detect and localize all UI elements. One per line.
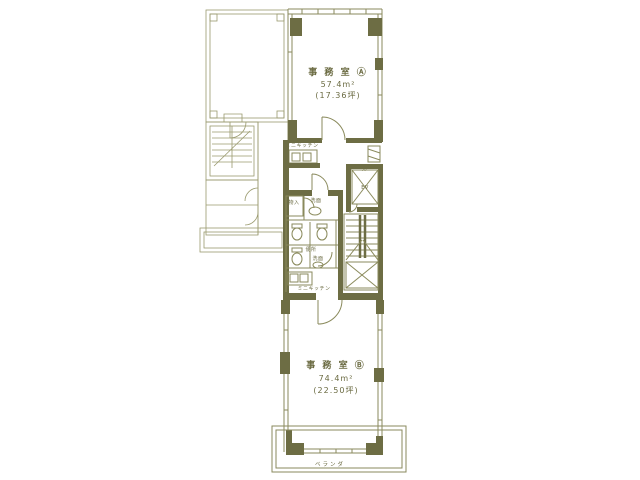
kitchen-sink [292,153,300,161]
corner-notch [210,14,217,21]
sanitary-block: 物入 洗面 便所 洗面 ミニキッチン [286,196,338,292]
stair-right-wall [378,212,383,300]
adjacent-balcony-inner [204,232,282,248]
storage-label: 物入 [288,199,299,206]
core-middle-wall [338,190,343,300]
corner-notch [277,14,284,21]
office-a-area: 57.4m² [321,80,356,89]
wall-pillar [376,300,384,314]
wall-pillar [375,58,383,70]
door-arc [245,188,258,201]
adjacent-room-outer-wall [206,10,288,122]
veranda-label: ベランダ [315,460,345,468]
door-arc [245,212,258,225]
adjacent-room-inner-wall [210,14,284,118]
main-stairs [344,212,383,300]
wall-pillar [281,300,290,314]
corner-notch [277,111,284,118]
washbasin [313,262,323,268]
adjacent-building [200,10,288,252]
office-b-area: 74.4m² [319,374,354,383]
stair-treads [346,220,378,256]
kitchen-stove [303,153,311,161]
toilet-label: 便所 [305,246,316,253]
core-bottom-wall [283,293,346,324]
wall-pillar [374,368,384,382]
elevator-label: EV [361,185,369,191]
stair-bottom-wall [344,293,383,300]
office-b-bottom-wall [286,430,383,455]
sanitary-top-wall [283,174,343,196]
office-a-tsubo: (17.36坪) [315,91,360,100]
mini-kitchen-lower-label: ミニキッチン [297,286,330,292]
washbasin [309,207,321,215]
office-b-title: 事 務 室 Ⓑ [306,359,365,371]
office-a-top-window-wall [288,9,382,14]
office-a-label: 事 務 室 Ⓐ 57.4m² (17.36坪) [308,66,367,100]
door-arc [312,174,328,190]
office-b-tsubo: (22.50坪) [313,386,358,395]
hall-window-louver [368,149,380,160]
adjacent-lower-rooms [206,180,258,235]
door-arc [318,300,342,324]
door-arc [322,117,345,140]
kitchen-sink [290,274,298,282]
wall-pillar [368,18,382,36]
adjacent-stairs-treads [212,126,252,168]
core-top-wall [288,117,382,143]
wall-pillar [288,120,297,140]
floor-plan-canvas: 事 務 室 Ⓐ 57.4m² (17.36坪) ミニキッチン ホール EV [0,0,640,480]
corner-notch [210,111,217,118]
washroom-lower-label: 洗面 [312,255,323,262]
kitchen-stove [300,274,308,282]
office-a-title: 事 務 室 Ⓐ [308,66,367,78]
office-b-label: 事 務 室 Ⓑ 74.4m² (22.50坪) [306,359,365,395]
mini-kitchen-upper-label: ミニキッチン [285,143,318,149]
wall-pillar [280,352,290,374]
floor-plan-svg: 事 務 室 Ⓐ 57.4m² (17.36坪) ミニキッチン ホール EV [0,0,640,480]
wall-pillar [290,18,302,36]
